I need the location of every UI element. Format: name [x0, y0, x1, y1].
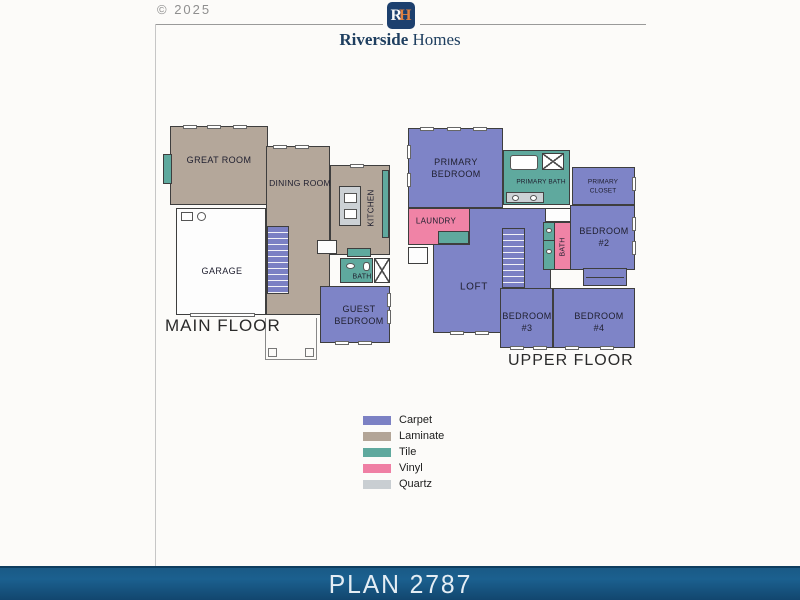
bedroom-2-label-1: BEDROOM	[579, 226, 628, 236]
rh-monogram-logo: RH	[387, 2, 415, 29]
fireplace	[163, 154, 172, 184]
primary-bedroom-label-2: BEDROOM	[431, 169, 480, 179]
island-sink-fixture	[344, 193, 357, 203]
loft-label: LOFT	[460, 282, 488, 293]
window-mark	[565, 346, 579, 350]
room-great-room: GREAT ROOM	[170, 126, 268, 205]
window-mark	[632, 217, 636, 231]
room-bedroom-3: BEDROOM #3	[500, 288, 553, 348]
legend-label: Quartz	[399, 478, 432, 490]
window-mark	[533, 346, 547, 350]
water-heater-fixture	[197, 212, 206, 221]
primary-vanity	[506, 192, 544, 203]
header-rule-left	[155, 24, 383, 25]
bath-sink-fixture	[346, 263, 355, 269]
window-mark	[387, 310, 391, 324]
laundry-label: LAUNDRY	[416, 217, 456, 226]
room-primary-bath: PRIMARY BATH	[503, 150, 570, 205]
room-guest-bedroom: GUEST BEDROOM	[320, 286, 390, 343]
main-floor-title: MAIN FLOOR	[165, 316, 275, 336]
bath-linen-closet	[545, 208, 571, 222]
primary-closet-label-1: PRIMARY	[588, 179, 618, 186]
legend-label: Laminate	[399, 430, 444, 442]
window-mark	[450, 331, 464, 335]
room-kitchen: KITCHEN	[330, 165, 390, 255]
window-mark	[295, 145, 309, 149]
logo-letter-h: H	[399, 8, 411, 24]
legend-item-tile: Tile	[363, 444, 444, 460]
porch-post	[268, 348, 277, 357]
toilet-fixture	[363, 262, 370, 271]
room-garage: GARAGE	[176, 208, 266, 315]
window-mark	[335, 341, 349, 345]
garage-label: GARAGE	[202, 266, 243, 276]
vanity-sink-fixture	[512, 195, 519, 201]
upper-floor-plan: LOFT PRIMARY BEDROOM PRIMARY BATH PRIMAR…	[405, 115, 650, 370]
plan-number: PLAN 2787	[328, 569, 471, 600]
window-mark	[273, 145, 287, 149]
legend-label: Vinyl	[399, 462, 423, 474]
legend-item-laminate: Laminate	[363, 428, 444, 444]
primary-bath-label: PRIMARY BATH	[516, 179, 565, 186]
wardrobe-rod	[586, 277, 624, 278]
room-bedroom-2: BEDROOM #2	[570, 205, 635, 270]
bedroom-4-label-1: BEDROOM	[574, 311, 623, 321]
laminate-swatch	[363, 432, 391, 441]
brand-name: Riverside Homes	[290, 30, 510, 50]
window-mark	[387, 293, 391, 307]
window-mark	[207, 125, 221, 129]
guest-bedroom-label-2: BEDROOM	[334, 316, 383, 326]
upper-bath-tub	[544, 240, 555, 269]
upper-bath-vanity	[544, 223, 555, 240]
vinyl-swatch	[363, 464, 391, 473]
bedroom-2-label-2: #2	[599, 238, 610, 248]
guest-bedroom-label-1: GUEST	[342, 304, 375, 314]
flooring-legend: Carpet Laminate Tile Vinyl Quartz	[363, 412, 444, 492]
window-mark	[407, 173, 411, 187]
room-primary-closet: PRIMARY CLOSET	[572, 167, 635, 205]
window-mark	[632, 241, 636, 255]
vanity-sink-fixture	[530, 195, 537, 201]
legend-item-carpet: Carpet	[363, 412, 444, 428]
tile-swatch	[363, 448, 391, 457]
legend-item-vinyl: Vinyl	[363, 460, 444, 476]
room-bedroom-4: BEDROOM #4	[553, 288, 635, 348]
main-staircase	[267, 226, 289, 294]
window-mark	[358, 341, 372, 345]
hall-closet	[317, 240, 337, 254]
primary-closet-label-2: CLOSET	[590, 188, 617, 195]
island-cooktop-fixture	[344, 209, 357, 219]
room-bath-upper: BATH	[543, 222, 571, 270]
room-laundry: LAUNDRY	[408, 208, 470, 245]
kitchen-island	[339, 186, 361, 226]
utility-sink-fixture	[181, 212, 193, 221]
quartz-swatch	[363, 480, 391, 489]
window-mark	[510, 346, 524, 350]
brand-primary: Riverside	[339, 30, 408, 49]
kitchen-counter	[382, 170, 389, 238]
legend-label: Tile	[399, 446, 416, 458]
main-bath-label: BATH	[353, 274, 372, 281]
window-mark	[183, 125, 197, 129]
legend-item-quartz: Quartz	[363, 476, 444, 492]
hall-vanity	[347, 248, 371, 257]
copyright-text: © 2025	[157, 2, 211, 17]
window-mark	[407, 145, 411, 159]
header-rule-right	[420, 24, 646, 25]
window-mark	[473, 127, 487, 131]
shower-stall	[374, 258, 390, 283]
window-mark	[632, 177, 636, 191]
legend-label: Carpet	[399, 414, 432, 426]
window-mark	[420, 127, 434, 131]
window-mark	[475, 331, 489, 335]
primary-bedroom-label-1: PRIMARY	[434, 157, 478, 167]
plan-number-banner: PLAN 2787	[0, 566, 800, 600]
bathtub-fixture	[510, 155, 538, 170]
bedroom-3-label-1: BEDROOM	[502, 311, 551, 321]
primary-shower-stall	[542, 153, 564, 170]
carpet-swatch	[363, 416, 391, 425]
porch-post	[305, 348, 314, 357]
upper-floor-title: UPPER FLOOR	[508, 352, 628, 370]
bedroom-3-label-2: #3	[522, 323, 533, 333]
window-mark	[600, 346, 614, 350]
bedroom-wardrobe	[583, 268, 627, 286]
window-mark	[447, 127, 461, 131]
laundry-counter	[438, 231, 469, 244]
upper-bath-label: BATH	[560, 238, 567, 257]
room-primary-bedroom: PRIMARY BEDROOM	[408, 128, 503, 208]
upper-hall-closet	[408, 247, 428, 264]
window-mark	[350, 164, 364, 168]
sink-fixture	[546, 228, 552, 233]
brand-secondary: Homes	[413, 30, 461, 49]
upper-staircase	[502, 228, 525, 288]
floor-plan-sheet: © 2025 RH Riverside Homes GARAGE GREAT R…	[0, 0, 800, 600]
great-room-label: GREAT ROOM	[187, 155, 252, 165]
dining-room-label: DINING ROOM	[269, 178, 331, 188]
main-floor-plan: GARAGE GREAT ROOM DINING ROOM KITCHEN BA…	[155, 118, 400, 370]
bedroom-4-label-2: #4	[594, 323, 605, 333]
kitchen-label: KITCHEN	[367, 189, 376, 226]
window-mark	[233, 125, 247, 129]
tub-drain-fixture	[546, 249, 552, 254]
room-bath-main: BATH	[340, 258, 373, 283]
